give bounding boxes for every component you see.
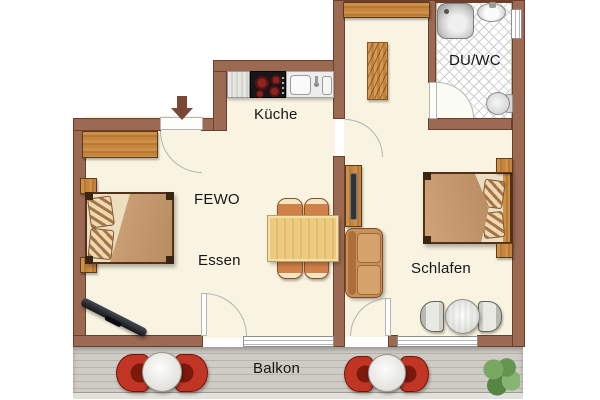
bathroom-label: DU/WC: [449, 52, 501, 69]
bedroom-wardrobe: [343, 2, 430, 18]
bed-post: [166, 192, 174, 200]
burner-icon: [256, 90, 264, 98]
stove-knob-icon: [282, 92, 284, 94]
bedroom-round-table: [445, 299, 480, 334]
living-window: [243, 336, 334, 347]
sofa-cushion: [357, 233, 381, 263]
bathroom-door-leaf: [429, 82, 437, 119]
dining-chair: [304, 198, 329, 218]
floorplan-canvas: Küche DU/WC FEWO Essen Schlafen Balkon: [0, 0, 600, 400]
burner-icon: [255, 76, 269, 90]
dining-label: Essen: [198, 252, 241, 269]
wall-bottom-left: [73, 335, 203, 347]
sofa-back: [348, 231, 356, 295]
burner-icon: [269, 86, 280, 97]
nightstand: [496, 243, 513, 258]
wall-bathroom-bottom: [428, 118, 512, 130]
entrance-arrow-icon: [171, 108, 193, 120]
balcony-label: Balkon: [253, 360, 300, 377]
bedroom-side-chair: [478, 301, 502, 332]
duvet: [425, 174, 489, 242]
dining-chair: [277, 259, 303, 279]
kitchen-sink: [286, 71, 334, 98]
balcony-deck-edge: [73, 392, 523, 399]
burner-icon: [271, 75, 281, 85]
living-double-bed: [85, 192, 174, 264]
bed-post: [85, 256, 93, 264]
bed-post: [423, 172, 431, 180]
plant: [482, 358, 520, 396]
duvet: [110, 194, 172, 262]
entrance-arrow-icon: [177, 96, 187, 108]
stove-knob-icon: [282, 82, 284, 84]
bathroom-window: [511, 9, 522, 39]
tv-board: [345, 165, 362, 227]
living-wardrobe: [82, 131, 158, 158]
toilet: [486, 92, 512, 115]
kitchen-counter: [227, 71, 250, 98]
toilet-bowl: [486, 92, 510, 115]
stove-knob-icon: [282, 77, 284, 79]
bed-post: [166, 256, 174, 264]
apartment-label: FEWO: [194, 191, 240, 208]
faucet-icon: [489, 2, 496, 8]
washbasin: [477, 3, 506, 22]
drain-icon: [444, 9, 449, 14]
bedroom-double-bed: [423, 172, 512, 244]
dining-chair: [277, 198, 303, 218]
dining-table: [268, 216, 338, 261]
tv-screen: [350, 173, 357, 220]
tall-shelf: [367, 42, 388, 100]
bedroom-side-chair: [420, 301, 444, 332]
stove: [250, 71, 286, 98]
sofa-cushion: [357, 265, 381, 295]
faucet-icon: [315, 76, 318, 84]
balcony-table: [368, 354, 406, 392]
sink-basin: [322, 76, 332, 95]
bedroom-label: Schlafen: [411, 260, 471, 277]
wall-right: [512, 0, 525, 347]
sofa: [345, 228, 383, 298]
wall-top-left: [73, 118, 161, 131]
bed-post: [85, 192, 93, 200]
stove-knob-icon: [282, 87, 284, 89]
sink-basin: [290, 75, 311, 95]
nightstand: [496, 158, 513, 173]
kitchen-label: Küche: [254, 106, 298, 123]
dining-chair: [304, 259, 329, 279]
bed-post: [423, 236, 431, 244]
balcony-table: [142, 352, 182, 392]
pillow: [87, 195, 115, 228]
bedroom-window: [397, 336, 478, 347]
shower: [437, 3, 474, 39]
